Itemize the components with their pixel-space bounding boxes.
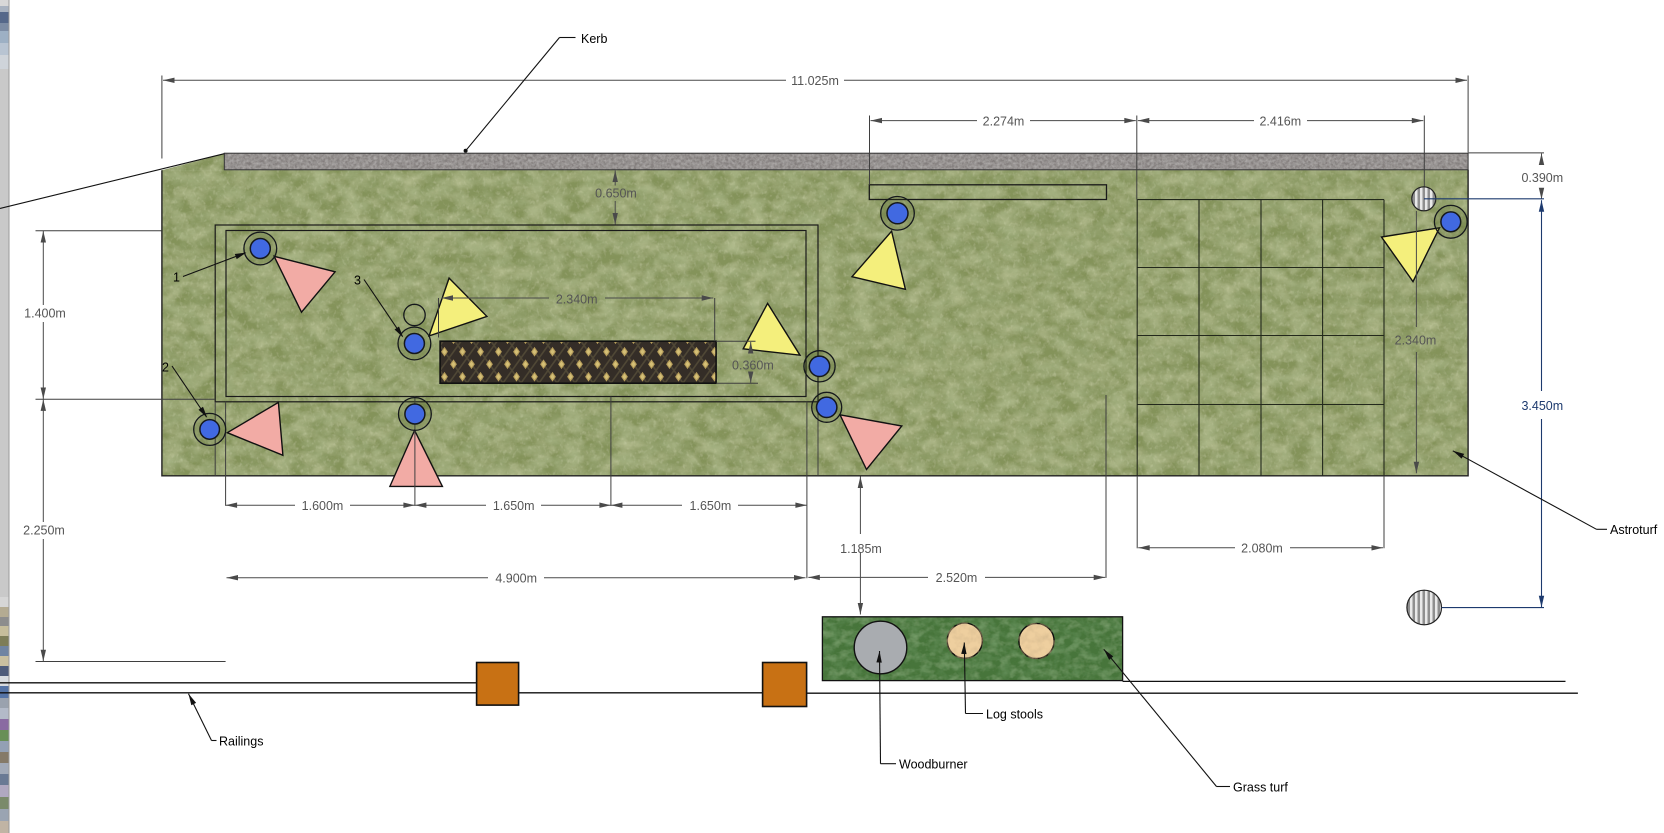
svg-text:1.650m: 1.650m	[690, 499, 732, 513]
svg-text:Log stools: Log stools	[986, 707, 1043, 721]
svg-text:2.416m: 2.416m	[1259, 114, 1301, 128]
svg-text:2: 2	[162, 361, 169, 375]
svg-text:Kerb: Kerb	[581, 32, 607, 46]
svg-text:0.390m: 0.390m	[1521, 171, 1563, 185]
svg-text:1.600m: 1.600m	[302, 499, 344, 513]
svg-text:1: 1	[173, 271, 180, 285]
svg-text:0.650m: 0.650m	[595, 187, 637, 201]
svg-text:Woodburner: Woodburner	[899, 758, 968, 772]
svg-text:Railings: Railings	[219, 734, 263, 748]
svg-text:2.520m: 2.520m	[936, 571, 978, 585]
svg-text:2.340m: 2.340m	[556, 292, 598, 306]
svg-text:1.185m: 1.185m	[840, 542, 882, 556]
svg-text:1.400m: 1.400m	[24, 307, 66, 321]
svg-text:0.360m: 0.360m	[732, 358, 774, 372]
svg-text:Grass turf: Grass turf	[1233, 780, 1288, 794]
svg-text:11.025m: 11.025m	[791, 74, 839, 88]
svg-text:2.080m: 2.080m	[1241, 542, 1283, 556]
svg-text:3: 3	[354, 274, 361, 288]
svg-text:3.450m: 3.450m	[1521, 399, 1563, 413]
svg-text:1.650m: 1.650m	[493, 499, 535, 513]
svg-text:2.340m: 2.340m	[1395, 333, 1437, 347]
svg-text:4.900m: 4.900m	[495, 571, 537, 585]
svg-text:2.274m: 2.274m	[983, 114, 1025, 128]
svg-text:Astroturf: Astroturf	[1610, 523, 1658, 537]
svg-text:2.250m: 2.250m	[23, 524, 65, 538]
